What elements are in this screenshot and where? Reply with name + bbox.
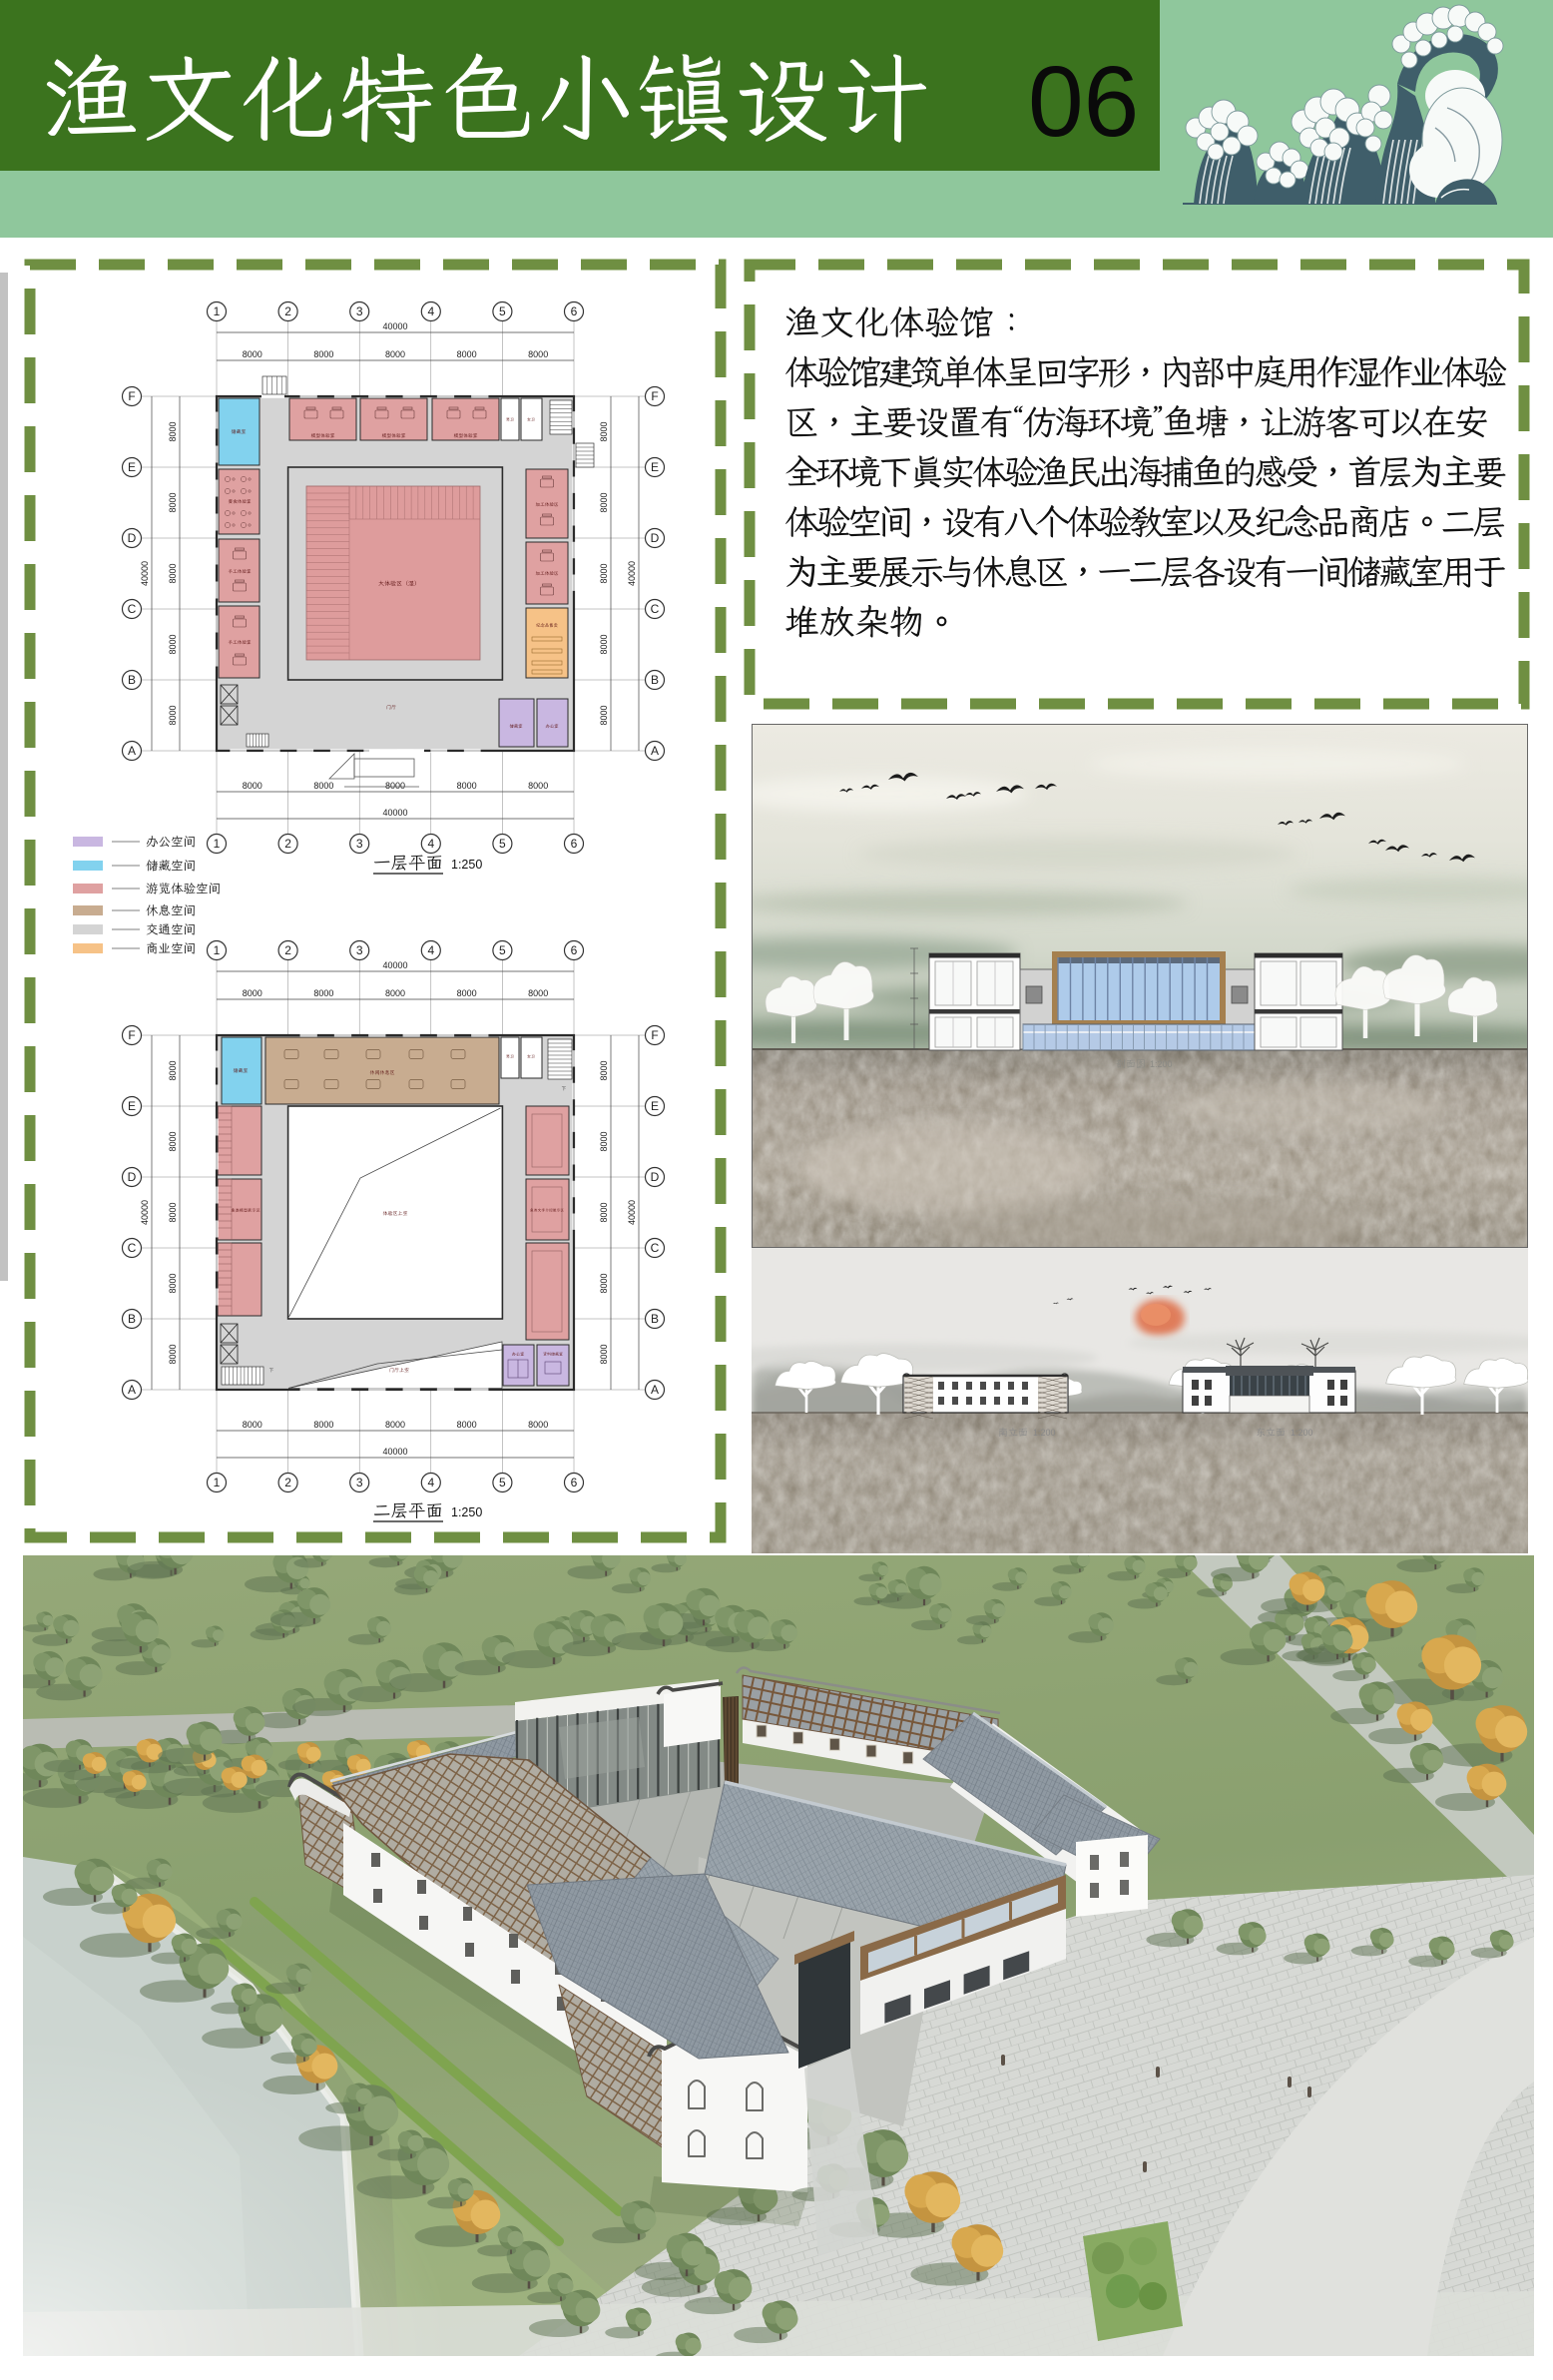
svg-text:40000: 40000 [627, 561, 637, 586]
svg-text:A: A [128, 744, 136, 758]
svg-text:1:250: 1:250 [451, 1505, 482, 1519]
svg-text:8000: 8000 [313, 349, 333, 359]
svg-text:8000: 8000 [599, 563, 609, 583]
svg-text:8000: 8000 [168, 421, 178, 441]
svg-text:6: 6 [571, 1476, 578, 1489]
svg-text:40000: 40000 [140, 1200, 150, 1225]
svg-text:D: D [651, 531, 660, 545]
svg-text:2: 2 [284, 304, 291, 318]
svg-text:8000: 8000 [168, 492, 178, 512]
svg-text:5: 5 [499, 304, 506, 318]
svg-text:1: 1 [214, 304, 221, 318]
svg-text:8000: 8000 [599, 705, 609, 725]
svg-text:8000: 8000 [313, 1420, 333, 1430]
svg-text:4: 4 [427, 943, 434, 957]
svg-text:4: 4 [427, 837, 434, 851]
svg-text:8000: 8000 [313, 988, 333, 998]
svg-text:8000: 8000 [599, 1131, 609, 1151]
svg-text:8000: 8000 [168, 1131, 178, 1151]
svg-text:2: 2 [284, 837, 291, 851]
svg-text:8000: 8000 [243, 1420, 262, 1430]
svg-text:8000: 8000 [599, 1202, 609, 1222]
svg-text:3: 3 [356, 304, 363, 318]
svg-text:A: A [651, 744, 659, 758]
svg-text:8000: 8000 [168, 1344, 178, 1364]
svg-text:40000: 40000 [627, 1200, 637, 1225]
svg-text:8000: 8000 [599, 492, 609, 512]
svg-text:E: E [651, 1099, 659, 1113]
svg-text:D: D [651, 1170, 660, 1184]
svg-text:F: F [128, 1028, 135, 1042]
svg-text:8000: 8000 [385, 1420, 405, 1430]
svg-text:1:200: 1:200 [1033, 1428, 1056, 1438]
svg-text:8000: 8000 [599, 1273, 609, 1293]
svg-text:8000: 8000 [457, 988, 477, 998]
svg-text:2: 2 [284, 1476, 291, 1489]
svg-text:8000: 8000 [528, 781, 548, 791]
svg-text:3: 3 [356, 943, 363, 957]
svg-text:8000: 8000 [457, 349, 477, 359]
svg-text:1:250: 1:250 [451, 858, 482, 872]
svg-text:D: D [128, 1170, 137, 1184]
svg-text:F: F [651, 1028, 658, 1042]
svg-text:B: B [651, 1312, 659, 1326]
svg-text:E: E [128, 1099, 136, 1113]
svg-text:8000: 8000 [243, 781, 262, 791]
svg-text:A: A [128, 1383, 136, 1397]
svg-text:40000: 40000 [382, 1447, 407, 1457]
svg-text:8000: 8000 [599, 1060, 609, 1080]
svg-text:8000: 8000 [243, 349, 262, 359]
svg-text:C: C [128, 602, 137, 616]
svg-text:5: 5 [499, 1476, 506, 1489]
svg-text:8000: 8000 [599, 1344, 609, 1364]
svg-text:C: C [128, 1241, 137, 1255]
svg-text:8000: 8000 [313, 781, 333, 791]
svg-text:8000: 8000 [168, 705, 178, 725]
svg-text:40000: 40000 [382, 960, 407, 970]
svg-text:C: C [651, 602, 660, 616]
svg-text:8000: 8000 [385, 349, 405, 359]
svg-text:8000: 8000 [528, 349, 548, 359]
svg-text:D: D [128, 531, 137, 545]
svg-text:A: A [651, 1383, 659, 1397]
svg-text:B: B [128, 1312, 136, 1326]
svg-text:2: 2 [284, 943, 291, 957]
svg-text:8000: 8000 [168, 563, 178, 583]
svg-text:E: E [651, 460, 659, 474]
svg-text:1: 1 [214, 1476, 221, 1489]
svg-text:8000: 8000 [457, 1420, 477, 1430]
svg-text:1: 1 [214, 837, 221, 851]
svg-text:8000: 8000 [528, 988, 548, 998]
svg-text:8000: 8000 [168, 1202, 178, 1222]
svg-text:5: 5 [499, 943, 506, 957]
svg-text:6: 6 [571, 943, 578, 957]
svg-text:8000: 8000 [168, 1060, 178, 1080]
svg-text:8000: 8000 [243, 988, 262, 998]
svg-text:40000: 40000 [382, 808, 407, 818]
svg-text:8000: 8000 [385, 988, 405, 998]
svg-text:8000: 8000 [385, 781, 405, 791]
svg-text:E: E [128, 460, 136, 474]
svg-text:B: B [128, 673, 136, 687]
svg-text:C: C [651, 1241, 660, 1255]
svg-text:40000: 40000 [382, 321, 407, 331]
svg-text:4: 4 [427, 304, 434, 318]
svg-text:F: F [128, 389, 135, 403]
svg-text:8000: 8000 [599, 421, 609, 441]
svg-text:8000: 8000 [457, 781, 477, 791]
svg-text:3: 3 [356, 1476, 363, 1489]
svg-text:5: 5 [499, 837, 506, 851]
svg-text:4: 4 [427, 1476, 434, 1489]
svg-text:8000: 8000 [168, 1273, 178, 1293]
svg-text:40000: 40000 [140, 561, 150, 586]
svg-text:F: F [651, 389, 658, 403]
svg-text:1:200: 1:200 [1150, 1059, 1173, 1069]
svg-text:1:200: 1:200 [1291, 1428, 1313, 1438]
svg-text:6: 6 [571, 837, 578, 851]
svg-text:8000: 8000 [168, 634, 178, 654]
svg-text:3: 3 [356, 837, 363, 851]
svg-text:8000: 8000 [528, 1420, 548, 1430]
svg-text:06: 06 [1028, 46, 1139, 158]
svg-text:1: 1 [214, 943, 221, 957]
svg-text:B: B [651, 673, 659, 687]
svg-text:8000: 8000 [599, 634, 609, 654]
svg-text:6: 6 [571, 304, 578, 318]
